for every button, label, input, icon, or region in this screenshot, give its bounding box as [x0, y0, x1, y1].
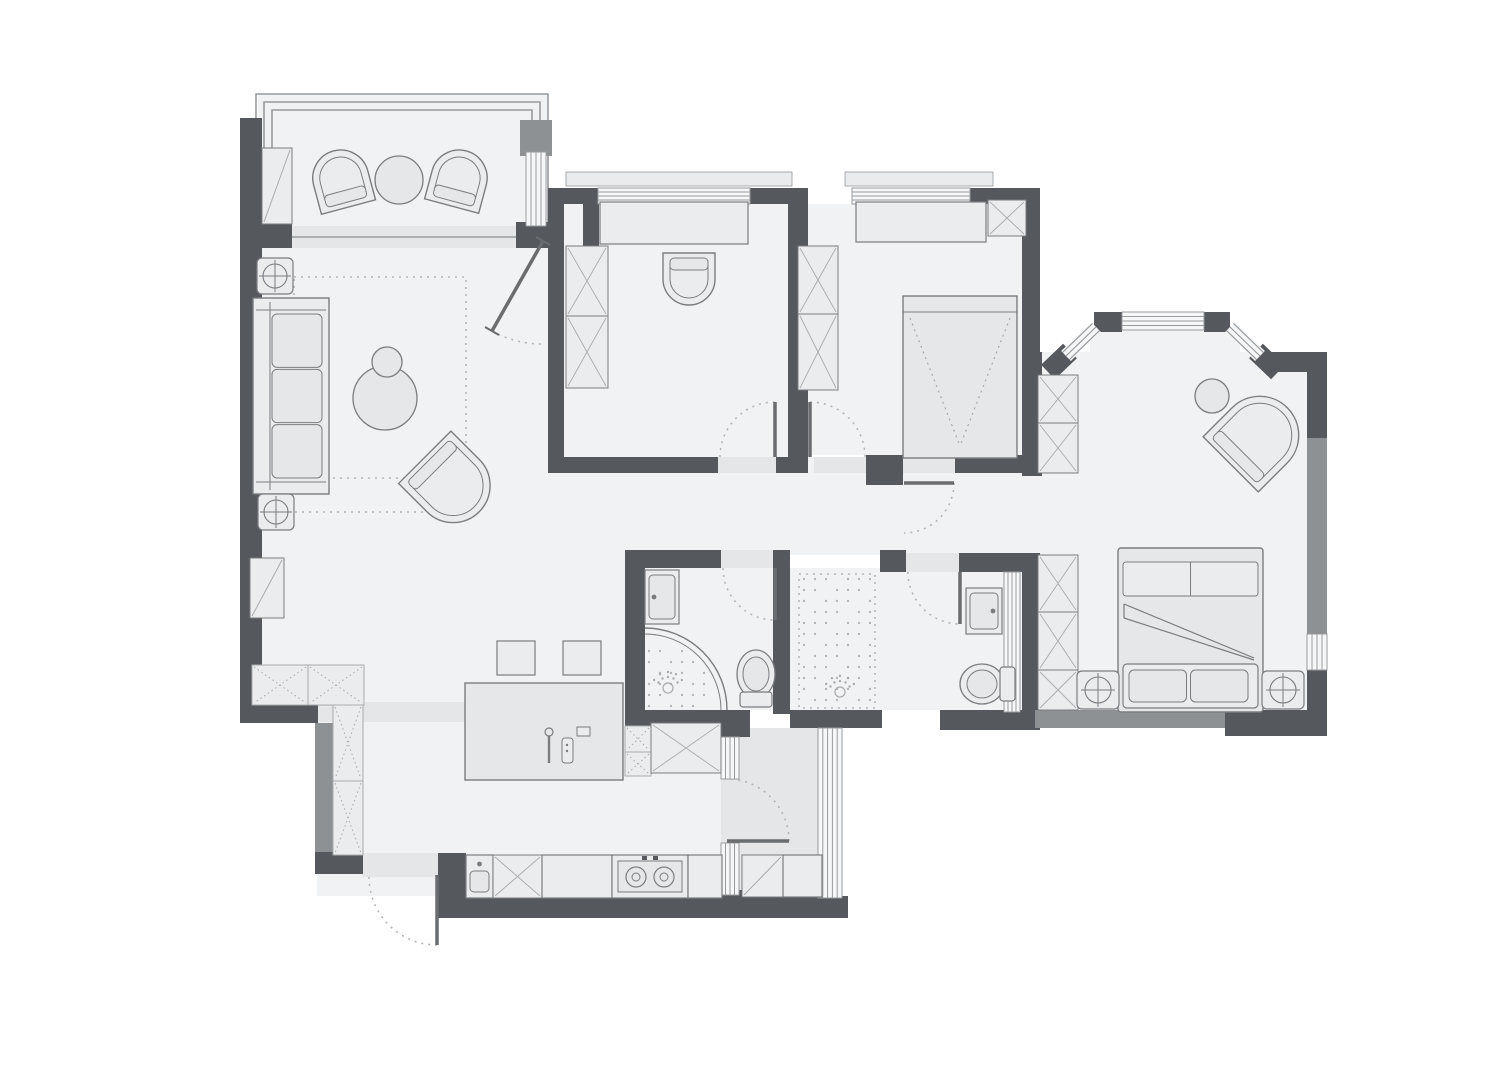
bedroom2-wardrobe: [798, 314, 838, 390]
balcony-cabinet: [262, 148, 292, 224]
kitchen-counter: [542, 855, 612, 898]
master-wardrobe: [1038, 670, 1078, 710]
bedroom2-desk: [856, 202, 986, 242]
kitchen-cabinet: [308, 665, 364, 705]
kitchen-counter: [688, 855, 722, 898]
utility-cabinet: [742, 855, 783, 897]
master-bath-sink: [966, 588, 1002, 634]
kitchen-island: [465, 683, 623, 780]
tall-cabinet-fridge: [651, 723, 721, 773]
master-bed: [1118, 548, 1263, 712]
study-chair: [663, 253, 715, 305]
bay-window-top: [1122, 312, 1204, 330]
bathroom-cabinet: [625, 752, 651, 776]
kitchen-base-cabinet: [493, 855, 542, 898]
master-side-table: [1195, 379, 1229, 413]
study-desk: [600, 202, 748, 244]
bedroom2-bed: [903, 296, 1017, 458]
utility-counter: [783, 855, 822, 897]
study-wardrobe: [566, 246, 608, 316]
master-bath-toilet: [960, 664, 1015, 704]
bathroom1-sink: [645, 570, 679, 624]
island-stool: [497, 641, 535, 675]
bedroom2-cabinet: [988, 200, 1026, 236]
side-table-lamp-top: [257, 258, 293, 294]
master-wardrobe: [1038, 423, 1078, 473]
living-sofa: [253, 298, 329, 494]
kitchen-cabinet: [333, 781, 363, 855]
bathroom1-toilet: [737, 650, 775, 707]
kitchen-cooktop: [612, 855, 688, 898]
bathroom-cabinet: [625, 726, 651, 752]
study-wardrobe: [566, 316, 608, 388]
nightstand-right: [1262, 671, 1304, 709]
side-table-lamp-bottom: [258, 494, 294, 530]
master-wardrobe: [1038, 612, 1078, 670]
island-stool: [563, 641, 601, 675]
window-ledges: [566, 172, 993, 186]
master-wardrobe: [1038, 375, 1078, 423]
kitchen-cabinet: [333, 705, 363, 781]
master-right-window: [1307, 634, 1327, 670]
balcony-side-window: [526, 152, 546, 226]
bay-notch-floor: [1090, 330, 1240, 356]
bedroom2-wardrobe: [798, 246, 838, 314]
kitchen-cabinet: [252, 665, 308, 705]
floor-plan: [0, 0, 1500, 1069]
kitchen-sink: [466, 855, 493, 898]
balcony-table: [375, 156, 423, 204]
utility-glass-upper: [721, 737, 739, 779]
nightstand-left: [1077, 671, 1119, 709]
utility-glass-lower: [721, 843, 739, 895]
master-wardrobe: [1038, 555, 1078, 612]
living-corner-cabinet: [250, 558, 284, 618]
floor-plan-svg: [0, 0, 1500, 1069]
